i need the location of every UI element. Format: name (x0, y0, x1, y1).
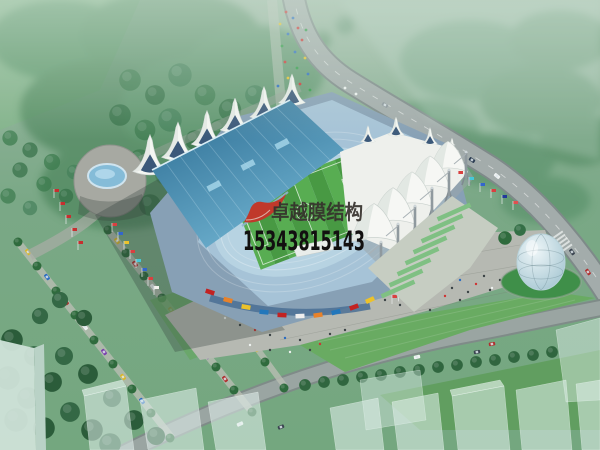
glass-egg-dome (517, 234, 565, 290)
stadium-aerial-rendering: 卓越膜结构 15343815143 (0, 0, 600, 450)
company-name-text: 卓越膜结构 (271, 200, 363, 224)
rendering-canvas: 卓越膜结构 15343815143 (0, 0, 600, 450)
left-edge-building (0, 340, 46, 450)
phone-number-text: 15343815143 (243, 226, 365, 257)
